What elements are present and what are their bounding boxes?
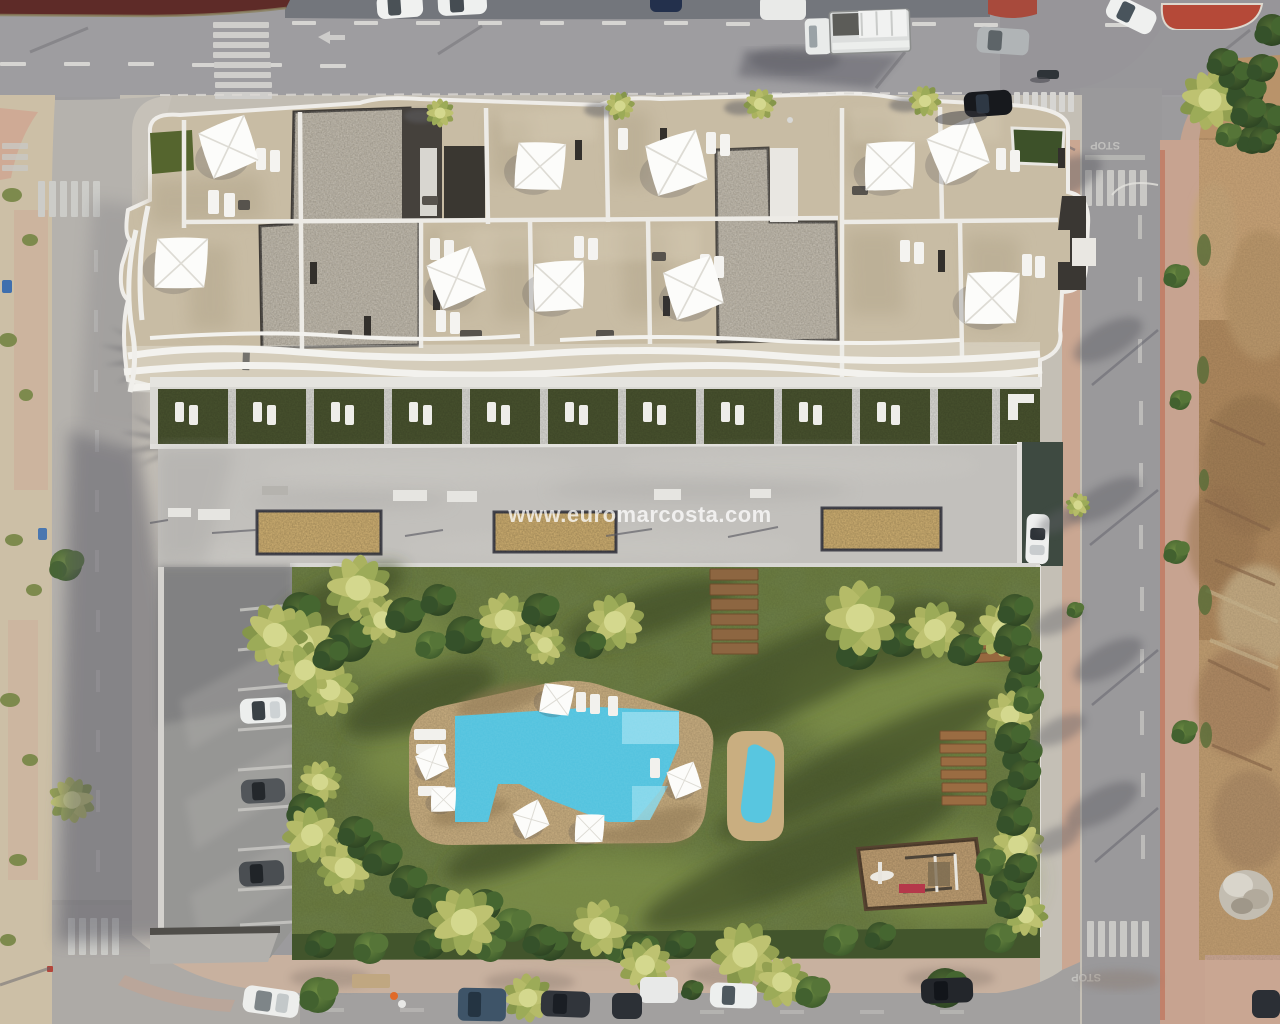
svg-text:STOP: STOP <box>1090 139 1120 151</box>
svg-text:www.euromarcosta.com: www.euromarcosta.com <box>507 502 771 527</box>
